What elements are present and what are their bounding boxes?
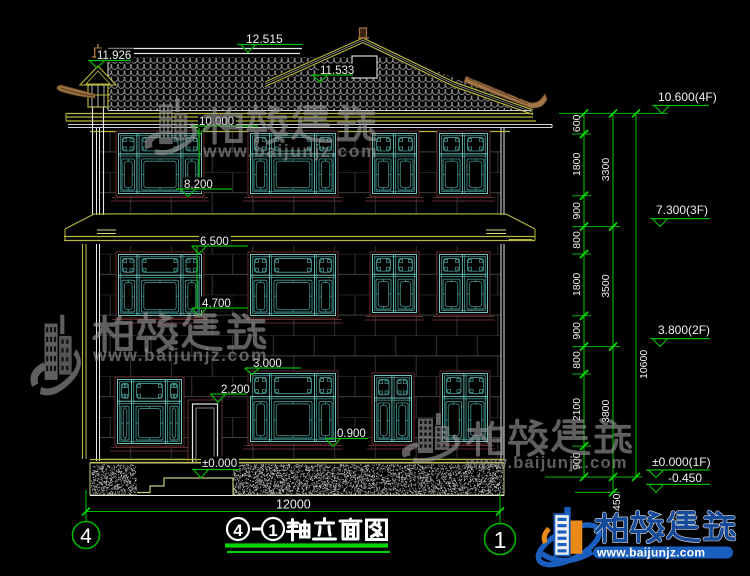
svg-text:-0.450: -0.450 <box>668 471 702 485</box>
svg-text:4: 4 <box>80 525 92 548</box>
svg-text:600: 600 <box>571 114 583 132</box>
svg-text:12000: 12000 <box>276 498 311 512</box>
svg-text:www.baijunjz.com: www.baijunjz.com <box>202 141 378 161</box>
svg-text:3500: 3500 <box>600 274 612 298</box>
svg-text:800: 800 <box>571 231 583 249</box>
svg-text:10600: 10600 <box>638 350 650 379</box>
svg-text:900: 900 <box>571 322 583 340</box>
svg-text:±0.000(1F): ±0.000(1F) <box>652 455 711 469</box>
svg-text:2100: 2100 <box>571 398 583 422</box>
svg-text:1: 1 <box>494 527 507 553</box>
svg-text:450: 450 <box>611 493 623 511</box>
svg-text:7.300(3F): 7.300(3F) <box>656 203 708 217</box>
svg-text:1800: 1800 <box>571 273 583 297</box>
svg-text:900: 900 <box>571 202 583 220</box>
svg-text:±0.000: ±0.000 <box>202 458 237 470</box>
svg-text:800: 800 <box>571 351 583 369</box>
svg-text:3300: 3300 <box>600 158 612 182</box>
svg-text:1800: 1800 <box>571 153 583 177</box>
svg-text:3.800(2F): 3.800(2F) <box>658 323 710 337</box>
svg-text:10.600(4F): 10.600(4F) <box>658 90 717 104</box>
